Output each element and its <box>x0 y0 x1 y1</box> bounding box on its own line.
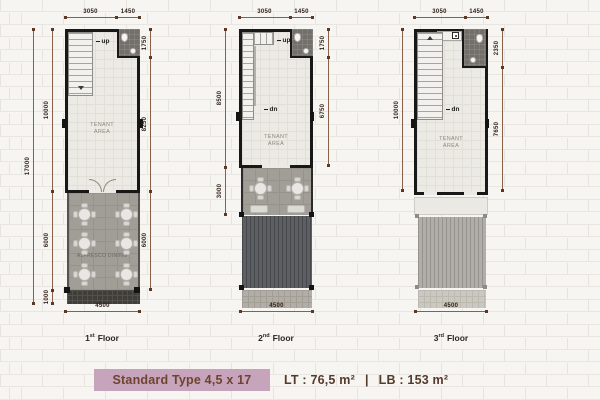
dimension-label: 4500 <box>65 302 140 310</box>
chair-icon <box>73 271 78 278</box>
chair-icon <box>81 221 88 226</box>
sink-icon <box>303 48 309 54</box>
dimension-line <box>239 17 313 18</box>
chair-icon <box>123 221 130 226</box>
dimension-line <box>65 17 140 18</box>
dining-table-icon <box>291 182 304 195</box>
chair-icon <box>81 281 88 286</box>
chair-icon <box>123 263 130 268</box>
column-post <box>64 287 70 293</box>
chair-icon <box>91 211 96 218</box>
floor-word: Floor <box>98 333 119 343</box>
stove-icon <box>452 32 459 39</box>
column-post <box>483 214 487 218</box>
bench-icon <box>287 205 305 213</box>
wall-pilaster <box>236 112 240 121</box>
chair-icon <box>304 185 309 192</box>
stair-arrow-icon <box>427 36 433 40</box>
dimension-label: 10000 <box>43 93 51 127</box>
staircase <box>242 32 254 120</box>
floor-plan-sheet: 3050 1450 17000 10000 6000 1000 1750 825… <box>0 0 600 400</box>
dining-table-icon <box>120 268 133 281</box>
dimension-label: 3050 <box>239 8 290 16</box>
chair-icon <box>81 232 88 237</box>
chair-icon <box>123 281 130 286</box>
column-post <box>309 212 314 217</box>
sink-icon <box>470 57 476 63</box>
dimension-label: 17000 <box>24 149 32 183</box>
dimension-label: 3050 <box>414 8 465 16</box>
chair-icon <box>91 240 96 247</box>
dimension-line <box>402 29 403 191</box>
room-label: TENANT AREA <box>261 134 291 148</box>
sink-icon <box>130 48 136 54</box>
chair-icon <box>81 203 88 208</box>
dining-table-icon <box>78 208 91 221</box>
chair-icon <box>81 250 88 255</box>
dimension-label: 7650 <box>493 112 501 146</box>
floor-ordinal: nd <box>263 333 270 339</box>
dining-table-icon <box>254 182 267 195</box>
chair-icon <box>115 271 120 278</box>
dimension-label: 6750 <box>319 94 327 128</box>
lt-value: LT : 76,5 m² <box>284 373 355 387</box>
staircase <box>253 32 274 45</box>
dimension-line <box>150 29 151 290</box>
chair-icon <box>133 240 138 247</box>
stair-arrow-icon <box>78 86 84 90</box>
stair-direction-label: dn <box>446 106 459 113</box>
type-banner: Standard Type 4,5 x 17 LT : 76,5 m² | LB… <box>94 369 448 391</box>
type-label-box: Standard Type 4,5 x 17 <box>94 369 270 391</box>
floor-word: Floor <box>447 333 468 343</box>
porch-strip <box>414 197 488 215</box>
door-opening <box>262 165 290 168</box>
chair-icon <box>115 240 120 247</box>
dimension-label: 3000 <box>216 174 224 208</box>
column-post <box>483 285 487 289</box>
chair-icon <box>123 203 130 208</box>
floor-title: 2ndFloor <box>236 333 316 343</box>
dining-table-icon <box>120 237 133 250</box>
chair-icon <box>123 250 130 255</box>
floor-word: Floor <box>273 333 294 343</box>
dimension-line <box>225 29 226 215</box>
dimension-line <box>52 29 53 304</box>
type-label: Standard Type 4,5 x 17 <box>113 373 252 387</box>
divider: | <box>365 373 369 387</box>
lb-value: LB : 153 m² <box>379 373 449 387</box>
column-post <box>309 285 314 290</box>
column-post <box>415 214 419 218</box>
window-opening <box>464 192 477 195</box>
toilet-icon <box>121 33 128 42</box>
dimension-line <box>33 29 34 304</box>
dimension-label: 8500 <box>216 81 224 115</box>
dimension-label: 1450 <box>116 8 140 16</box>
bench-icon <box>250 205 268 213</box>
dimension-label: 1000 <box>43 280 51 314</box>
dimension-line <box>414 17 488 18</box>
dimension-label: 1450 <box>465 8 488 16</box>
dimension-label: 4500 <box>240 302 313 310</box>
floor-title: 3rdFloor <box>411 333 491 343</box>
column-post <box>134 287 140 293</box>
chair-icon <box>133 211 138 218</box>
chair-icon <box>115 211 120 218</box>
brick-row <box>0 313 600 325</box>
chair-icon <box>286 185 291 192</box>
chair-icon <box>294 195 301 200</box>
chair-icon <box>267 185 272 192</box>
chair-icon <box>73 211 78 218</box>
bathroom <box>117 29 140 58</box>
chair-icon <box>257 177 264 182</box>
floor-ordinal: rd <box>438 333 444 339</box>
dining-table-icon <box>78 268 91 281</box>
dimension-label: 6000 <box>43 223 51 257</box>
dimension-label: 1450 <box>290 8 313 16</box>
bathroom <box>290 29 313 58</box>
dining-table-icon <box>120 208 133 221</box>
chair-icon <box>249 185 254 192</box>
column-post <box>415 285 419 289</box>
dimension-label: 10000 <box>393 93 401 127</box>
dimension-label: 3050 <box>65 8 116 16</box>
chair-icon <box>81 263 88 268</box>
floor-title: 1stFloor <box>62 333 142 343</box>
stair-landing-wall <box>254 46 256 106</box>
window-opening <box>424 192 437 195</box>
dimension-label: 2350 <box>493 31 501 65</box>
dimension-label: 4500 <box>415 302 487 310</box>
room-label: TENANT AREA <box>87 122 117 136</box>
chair-icon <box>133 271 138 278</box>
stair-direction-label: up <box>277 37 290 44</box>
chair-icon <box>73 240 78 247</box>
dimension-line <box>65 311 140 312</box>
wall-pilaster <box>411 119 415 128</box>
wall-pilaster <box>310 112 314 121</box>
chair-icon <box>294 177 301 182</box>
area-info: LT : 76,5 m² | LB : 153 m² <box>284 369 448 391</box>
dining-table-icon <box>78 237 91 250</box>
chair-icon <box>123 232 130 237</box>
brick-row <box>0 350 600 362</box>
roof-canopy <box>418 217 486 288</box>
toilet-icon <box>294 33 301 42</box>
dimension-label: 6000 <box>141 223 149 257</box>
column-post <box>239 285 244 290</box>
chair-icon <box>257 195 264 200</box>
roof-canopy <box>242 216 312 288</box>
chair-icon <box>91 271 96 278</box>
dimension-line <box>240 311 313 312</box>
wall-pilaster <box>62 119 66 128</box>
dimension-line <box>502 29 503 191</box>
stair-direction-label: dn <box>264 106 277 113</box>
toilet-icon <box>476 34 483 43</box>
column-post <box>239 212 244 217</box>
wall-pilaster <box>485 119 489 128</box>
staircase <box>417 32 443 120</box>
dimension-line <box>328 29 329 166</box>
dimension-label: 8250 <box>141 107 149 141</box>
floor-ordinal: st <box>90 333 95 339</box>
stair-direction-label: up <box>96 38 109 45</box>
dimension-label: 1750 <box>141 26 149 60</box>
dimension-line <box>415 311 487 312</box>
dimension-label: 1750 <box>319 26 327 60</box>
room-label: TENANT AREA <box>436 136 466 150</box>
